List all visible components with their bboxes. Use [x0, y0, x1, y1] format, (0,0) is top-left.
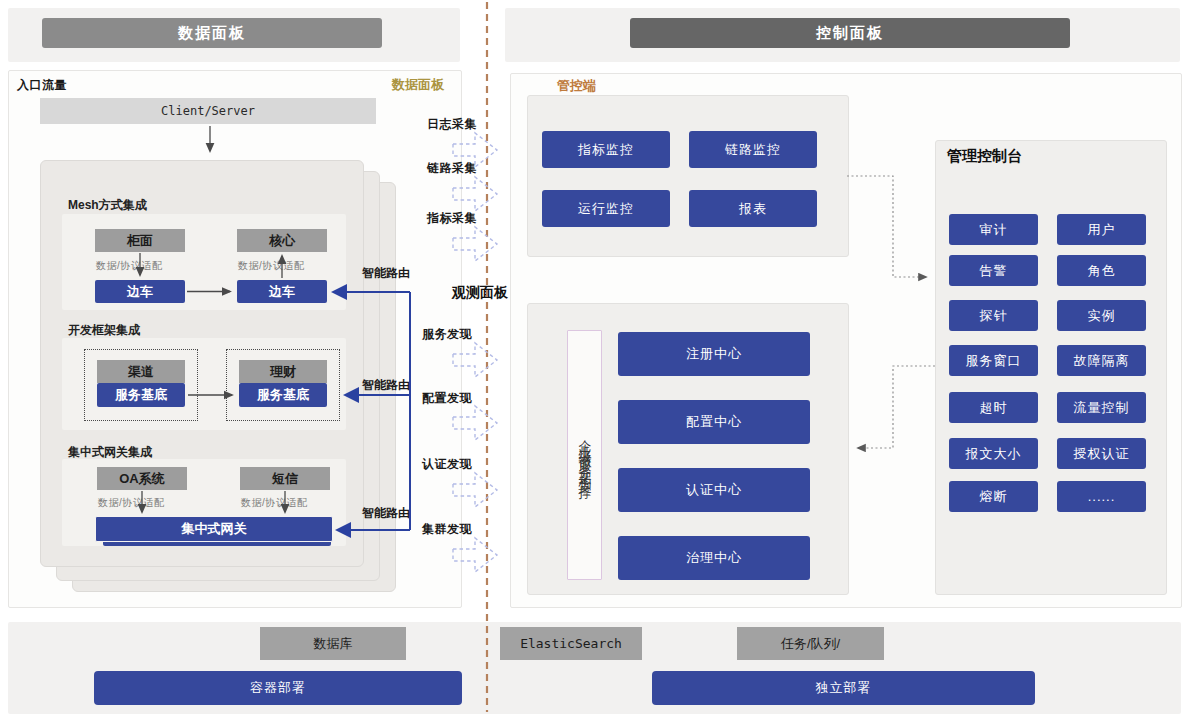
node-oa-system: OA系统 [97, 467, 187, 490]
btn-auth-center: 认证中心 [618, 468, 810, 512]
smart-route-label-3: 智能路由 [352, 505, 410, 522]
flow-trace-collect: 链路采集 [427, 160, 477, 177]
infra-elasticsearch: ElasticSearch [500, 627, 642, 660]
adapter-label-gw-right: 数据/协议适配 [241, 496, 307, 510]
node-core: 核心 [237, 229, 327, 252]
section-mesh-title: Mesh方式集成 [68, 197, 147, 214]
smart-route-label-1: 智能路由 [352, 265, 410, 282]
btn-trace-monitor: 链路监控 [689, 131, 817, 168]
gateway-bar: 集中式网关 [95, 516, 333, 542]
btn-probe: 探针 [949, 300, 1038, 331]
btn-circuit-break: 熔断 [949, 481, 1038, 512]
smart-route-label-2: 智能路由 [352, 377, 410, 394]
adapter-label-left: 数据/协议适配 [96, 259, 162, 273]
flow-service-discovery: 服务发现 [422, 326, 472, 343]
data-panel-header: 数据面板 [42, 18, 382, 48]
btn-registry-center: 注册中心 [618, 332, 810, 376]
btn-metric-monitor: 指标监控 [542, 131, 670, 168]
adapter-label-right: 数据/协议适配 [238, 259, 304, 273]
btn-alert: 告警 [949, 255, 1038, 286]
node-sidecar-right: 边车 [237, 280, 327, 303]
node-counter: 柜面 [95, 229, 185, 252]
btn-report: 报表 [689, 190, 817, 227]
btn-message-size: 报文大小 [949, 438, 1038, 469]
btn-audit: 审计 [949, 214, 1038, 245]
control-panel-header: 控制面板 [630, 18, 1070, 48]
deploy-standalone: 独立部署 [652, 671, 1035, 705]
console-title: 管理控制台 [947, 147, 1022, 166]
flow-log-collect: 日志采集 [427, 116, 477, 133]
node-wealth: 理财 [239, 360, 327, 383]
btn-service-window: 服务窗口 [949, 345, 1038, 376]
mgmt-panel [527, 95, 849, 257]
adapter-label-gw-left: 数据/协议适配 [98, 496, 164, 510]
microservice-support-label: 企业级微服务架构支撑 [567, 330, 602, 580]
observe-panel-title: 观测面板 [452, 284, 508, 302]
btn-governance-center: 治理中心 [618, 536, 810, 580]
flow-cluster-discovery: 集群发现 [422, 521, 472, 538]
node-service-base-left: 服务基底 [97, 383, 185, 407]
deploy-container: 容器部署 [94, 671, 462, 705]
flow-metric-collect: 指标采集 [427, 210, 477, 227]
section-framework-title: 开发框架集成 [68, 322, 140, 339]
flow-auth-discovery: 认证发现 [422, 456, 472, 473]
btn-timeout: 超时 [949, 392, 1038, 423]
btn-more: ...... [1057, 481, 1146, 512]
btn-authz: 授权认证 [1057, 438, 1146, 469]
infra-database: 数据库 [260, 627, 406, 660]
node-channel: 渠道 [97, 360, 185, 383]
btn-fault-isolation: 故障隔离 [1057, 345, 1146, 376]
btn-instance: 实例 [1057, 300, 1146, 331]
data-panel-watermark: 数据面板 [340, 76, 444, 94]
infra-task-queue: 任务/队列/ [737, 627, 884, 660]
btn-user: 用户 [1057, 214, 1146, 245]
btn-role: 角色 [1057, 255, 1146, 286]
btn-config-center: 配置中心 [618, 400, 810, 444]
btn-runtime-monitor: 运行监控 [542, 190, 670, 227]
btn-flow-control: 流量控制 [1057, 392, 1146, 423]
node-service-base-right: 服务基底 [239, 383, 327, 407]
node-sidecar-left: 边车 [95, 280, 185, 303]
mgmt-side-label: 管控端 [557, 77, 596, 95]
flow-config-discovery: 配置发现 [422, 390, 472, 407]
node-sms: 短信 [240, 467, 330, 490]
client-server-bar: Client/Server [40, 98, 376, 124]
entry-traffic-label: 入口流量 [17, 77, 67, 94]
architecture-diagram: 数据面板 控制面板 入口流量 数据面板 Client/Server Mesh方式… [0, 0, 1189, 720]
